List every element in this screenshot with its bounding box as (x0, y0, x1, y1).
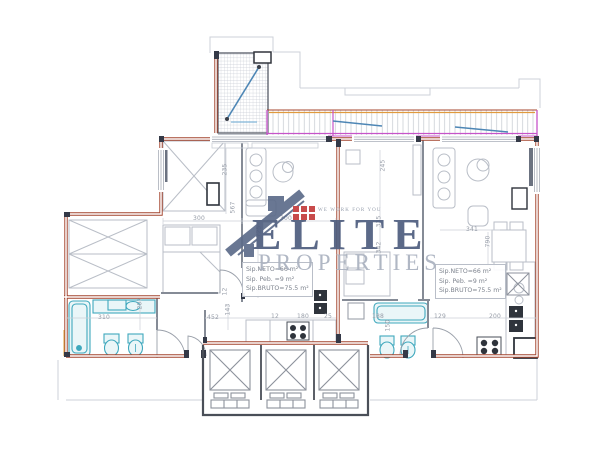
bed (344, 252, 390, 296)
dimension-label: 335 (376, 215, 383, 227)
floor-plan-drawing (0, 0, 600, 450)
area-line: Sip.BRUTO=75.5 m² (439, 286, 502, 296)
terrace-corner-box (254, 52, 271, 63)
dining-table (492, 230, 526, 262)
dimension-label: 452 (207, 314, 219, 321)
stove (477, 337, 501, 356)
terrace (218, 52, 271, 137)
dimension-label: 725 (256, 225, 263, 237)
area-line: Sip.NETO=66 m² (246, 265, 309, 275)
balcony (267, 110, 537, 136)
dimension-label: 235 (222, 163, 229, 175)
appliances (163, 148, 537, 358)
tv-unit (512, 188, 527, 209)
right-entry-door (433, 328, 463, 358)
right-apartment-furniture (344, 145, 535, 356)
radiator (529, 148, 534, 186)
dimension-label: 341 (466, 226, 478, 233)
dimension-label: 300 (193, 215, 205, 222)
vanity-counter (93, 300, 155, 313)
dimension-label: 129 (434, 313, 446, 320)
washer (348, 303, 364, 319)
dimension-label: 180 (297, 313, 309, 320)
left-unit-area-block: Sip.NETO=66 m² Sip. Peb. =9 m² Sip.BRUTO… (242, 262, 313, 297)
dimension-label: 342 (376, 241, 383, 253)
dimension-label: 310 (98, 314, 110, 321)
dimension-label: 300 (280, 215, 292, 222)
area-line: Sip. Peb. =9 m² (246, 275, 309, 285)
dimension-label: 150 (385, 319, 392, 331)
dimension-label: 12 (222, 287, 229, 295)
dimension-label: 25 (324, 313, 332, 320)
dimension-label: 207 (137, 297, 144, 309)
bathroom-door (157, 330, 185, 358)
area-line: Sip.NETO=66 m² (439, 267, 502, 277)
dimension-label: 790 (485, 235, 492, 247)
right-unit-area-block: Sip.NETO=66 m² Sip. Peb. =9 m² Sip.BRUTO… (435, 264, 506, 299)
area-line: Sip. Peb. =9 m² (439, 277, 502, 287)
sofa (246, 148, 266, 206)
dimension-label: 143 (225, 303, 232, 315)
dimension-label: 12 (271, 313, 279, 320)
dimension-label: 200 (489, 313, 501, 320)
chair (468, 206, 488, 226)
nightstand (207, 183, 219, 205)
dimension-label: 188 (372, 313, 384, 320)
elevator-core (203, 345, 368, 415)
sofa (433, 148, 455, 208)
dimension-label: 245 (380, 159, 387, 171)
dimension-label: 567 (230, 201, 237, 213)
area-line: Sip.BRUTO=75.5 m² (246, 284, 309, 294)
floorplan-screenshot: Sip.NETO=66 m² Sip. Peb. =9 m² Sip.BRUTO… (0, 0, 600, 450)
